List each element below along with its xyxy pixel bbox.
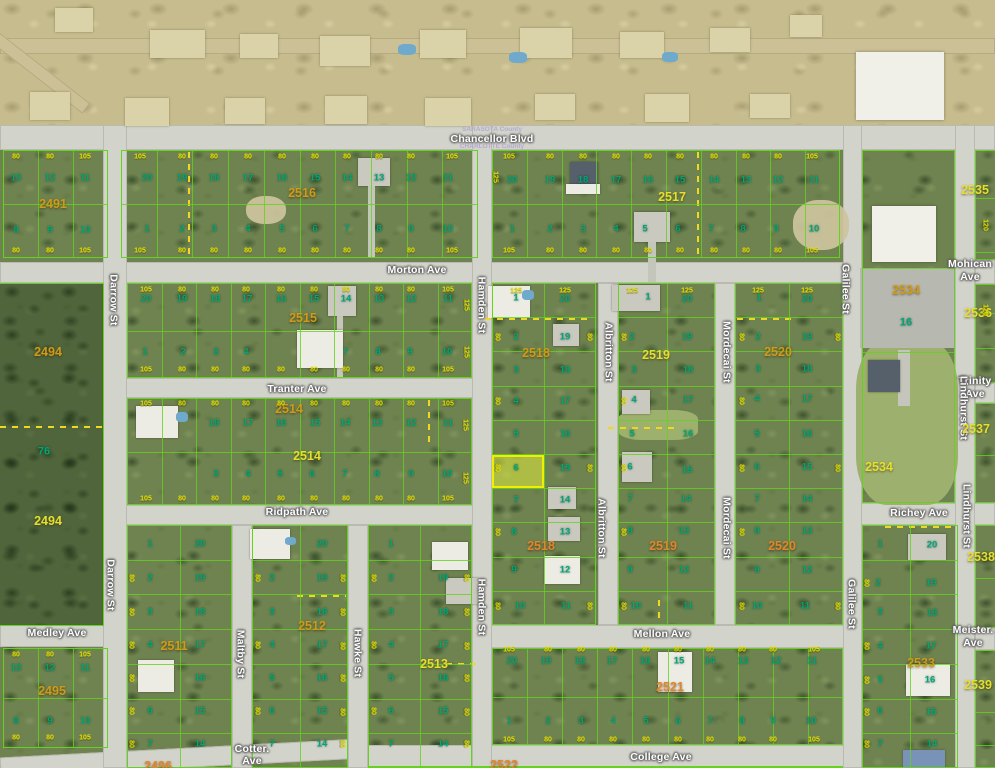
lot-number: 10 bbox=[752, 601, 763, 611]
lot-number: 16 bbox=[683, 429, 694, 439]
lot-dimension: 105 bbox=[79, 248, 91, 255]
street-label: Meister. bbox=[953, 625, 994, 636]
parcel-line bbox=[492, 204, 840, 205]
lot-number: 10 bbox=[631, 601, 642, 611]
block-number: 2515 bbox=[289, 312, 317, 325]
street-label: Ave bbox=[963, 638, 982, 649]
lot-number: 19 bbox=[560, 332, 571, 342]
lot-number: 20 bbox=[142, 173, 153, 183]
block-sliver-2538 bbox=[975, 525, 995, 628]
lot-number: 19 bbox=[541, 656, 552, 666]
lot-number: 18 bbox=[560, 365, 571, 375]
lot-number: 17 bbox=[802, 394, 813, 404]
lot-dimension: 105 bbox=[134, 154, 146, 161]
parcel-line bbox=[300, 525, 301, 768]
street-label: Ave bbox=[242, 756, 261, 767]
lot-number: 6 bbox=[312, 224, 317, 234]
lot-number: 2 bbox=[629, 332, 634, 342]
lot-number: 4 bbox=[877, 641, 882, 651]
lot-number: 16 bbox=[643, 175, 654, 185]
house bbox=[790, 15, 822, 37]
lot-dimension: 80 bbox=[407, 248, 415, 255]
lot-number: 12 bbox=[45, 173, 56, 183]
lot-number: 1 bbox=[509, 224, 514, 234]
lot-number: 17 bbox=[438, 640, 449, 650]
lot-number: 20 bbox=[802, 294, 813, 304]
parcel-line bbox=[975, 578, 995, 579]
lot-number: 9 bbox=[408, 469, 413, 479]
lot-dimension: 80 bbox=[211, 496, 219, 503]
house bbox=[750, 94, 790, 118]
large-building bbox=[856, 52, 944, 120]
lot-dimension: 80 bbox=[210, 248, 218, 255]
lot-number: 7 bbox=[707, 716, 712, 726]
lot-number: 6 bbox=[309, 469, 314, 479]
lot-dimension: 80 bbox=[546, 248, 554, 255]
block-sliver-2539 bbox=[975, 650, 995, 768]
parcel-line bbox=[3, 698, 108, 699]
lot-dimension: 125 bbox=[801, 288, 813, 295]
lot-number: 17 bbox=[683, 395, 694, 405]
lot-dimension: 105 bbox=[442, 496, 454, 503]
lot-dimension: 80 bbox=[609, 647, 617, 654]
street-label: Cotter. bbox=[235, 744, 270, 755]
lot-dimension: 80 bbox=[774, 154, 782, 161]
lot-dimension: 80 bbox=[863, 708, 870, 716]
parcel-line bbox=[862, 733, 958, 734]
lot-dimension: 80 bbox=[211, 287, 219, 294]
lot-number: 1 bbox=[147, 539, 152, 549]
lot-dimension: 80 bbox=[738, 737, 746, 744]
lot-dimension: 80 bbox=[463, 642, 470, 650]
lot-dimension: 105 bbox=[503, 737, 515, 744]
block-number: 2494 bbox=[34, 515, 62, 528]
block-number: 2520 bbox=[768, 540, 796, 553]
lot-number: 13 bbox=[738, 656, 749, 666]
lot-number: 15 bbox=[317, 706, 328, 716]
lot-dimension: 80 bbox=[342, 287, 350, 294]
parcel-line bbox=[618, 454, 715, 455]
lot-dimension: 80 bbox=[244, 248, 252, 255]
lot-number: 2 bbox=[547, 224, 552, 234]
lot-dimension: 80 bbox=[620, 602, 627, 610]
block-number: 2517 bbox=[658, 191, 686, 204]
lot-number: 12 bbox=[406, 418, 417, 428]
lot-number: 17 bbox=[243, 418, 254, 428]
lot-dimension: 80 bbox=[277, 367, 285, 374]
block-2494 bbox=[0, 283, 104, 626]
lot-dimension: 80 bbox=[579, 248, 587, 255]
lot-number: 18 bbox=[575, 656, 586, 666]
parcel-line bbox=[492, 488, 596, 489]
lot-number: 20 bbox=[507, 656, 518, 666]
street-label: Hamden St bbox=[476, 277, 487, 334]
lot-dimension: 105 bbox=[140, 287, 152, 294]
lot-dimension: 80 bbox=[12, 652, 20, 659]
house bbox=[420, 30, 466, 58]
lot-dimension: 80 bbox=[620, 528, 627, 536]
road-lindhurst-st bbox=[955, 125, 975, 768]
lot-number: 6 bbox=[675, 224, 680, 234]
block-number: 2513 bbox=[420, 658, 448, 671]
lot-number: 4 bbox=[513, 396, 518, 406]
lot-dimension: 80 bbox=[834, 602, 841, 610]
lot-number: 17 bbox=[560, 396, 571, 406]
lot-number: 4 bbox=[147, 640, 152, 650]
lot-number: 4 bbox=[388, 640, 393, 650]
lot-dimension: 80 bbox=[676, 154, 684, 161]
lot-dimension: 105 bbox=[442, 367, 454, 374]
county-label: SARASOTA County bbox=[462, 127, 522, 134]
lot-dimension: 80 bbox=[12, 735, 20, 742]
street-label: Darrow St bbox=[108, 274, 119, 325]
lot-number: 6 bbox=[877, 706, 882, 716]
lot-dimension: 80 bbox=[339, 642, 346, 650]
lot-dimension: 80 bbox=[674, 737, 682, 744]
street-label: Richey Ave bbox=[890, 508, 948, 519]
lot-dimension: 80 bbox=[577, 647, 585, 654]
lot-number: 2 bbox=[388, 573, 393, 583]
parcel-line bbox=[618, 386, 715, 387]
lot-dimension: 80 bbox=[277, 496, 285, 503]
lot-number: 15 bbox=[560, 463, 571, 473]
lot-number: 10 bbox=[806, 716, 817, 726]
house bbox=[320, 36, 370, 66]
parcel-line bbox=[252, 699, 348, 700]
lot-dimension: 80 bbox=[12, 154, 20, 161]
lot-number: 4 bbox=[245, 469, 250, 479]
parcel-line bbox=[368, 699, 472, 700]
lot-number: 13 bbox=[741, 175, 752, 185]
parcel-line bbox=[862, 699, 958, 700]
lot-number: 6 bbox=[388, 706, 393, 716]
block-number: 2495 bbox=[38, 685, 66, 698]
parcel-line bbox=[368, 560, 472, 561]
lot-dimension: 80 bbox=[343, 248, 351, 255]
house bbox=[240, 34, 278, 58]
house bbox=[645, 94, 689, 122]
lot-number: 13 bbox=[374, 173, 385, 183]
lot-dimension: 80 bbox=[242, 287, 250, 294]
block-number: 2539 bbox=[964, 679, 992, 692]
lot-dimension: 80 bbox=[738, 647, 746, 654]
lot-number: 1 bbox=[142, 347, 147, 357]
lot-dimension: 80 bbox=[343, 154, 351, 161]
block-number: 2512 bbox=[298, 620, 326, 633]
lot-dimension: 80 bbox=[46, 154, 54, 161]
lot-dimension: 80 bbox=[834, 464, 841, 472]
lot-number: 5 bbox=[277, 469, 282, 479]
lot-dimension: 125 bbox=[462, 472, 469, 484]
parcel-line bbox=[975, 455, 995, 456]
lot-number: 9 bbox=[407, 347, 412, 357]
lot-number: 17 bbox=[242, 294, 253, 304]
lot-dimension: 80 bbox=[311, 154, 319, 161]
parcel-line bbox=[735, 386, 843, 387]
lot-dimension: 125 bbox=[510, 288, 522, 295]
lot-number: 13 bbox=[679, 526, 690, 536]
lot-number: 5 bbox=[388, 673, 393, 683]
lot-number: 10 bbox=[443, 224, 454, 234]
lot-number: 14 bbox=[927, 739, 938, 749]
parcel-line bbox=[618, 488, 715, 489]
parcel-line bbox=[252, 560, 348, 561]
parcel-line bbox=[121, 204, 478, 205]
lot-dimension: 80 bbox=[178, 248, 186, 255]
lot-number: 7 bbox=[877, 739, 882, 749]
parcel-line bbox=[735, 522, 843, 523]
parcel-line bbox=[618, 317, 715, 318]
lot-number: 4 bbox=[610, 716, 615, 726]
lot-dimension: 105 bbox=[140, 401, 152, 408]
lot-number: 19 bbox=[545, 175, 556, 185]
house bbox=[150, 30, 205, 58]
street-label: Ridpath Ave bbox=[266, 507, 329, 518]
lot-number: 9 bbox=[770, 716, 775, 726]
parcel-line bbox=[735, 420, 843, 421]
street-label: Hamden St bbox=[476, 579, 487, 636]
lot-number: 5 bbox=[877, 675, 882, 685]
lot-dimension: 80 bbox=[706, 647, 714, 654]
parcel-line bbox=[862, 352, 955, 353]
lot-number: 10 bbox=[442, 347, 453, 357]
lot-number: 2 bbox=[545, 716, 550, 726]
lot-number: 14 bbox=[802, 494, 813, 504]
house bbox=[535, 94, 575, 120]
lot-dimension: 80 bbox=[742, 248, 750, 255]
lot-dimension: 80 bbox=[178, 496, 186, 503]
lot-dimension: 80 bbox=[834, 333, 841, 341]
parcel-line bbox=[368, 629, 472, 630]
parcel-line bbox=[492, 420, 596, 421]
house bbox=[425, 98, 471, 126]
parcel-line bbox=[492, 386, 596, 387]
block-number: 2521 bbox=[656, 681, 684, 694]
pool bbox=[509, 52, 527, 63]
lot-dimension: 80 bbox=[128, 707, 135, 715]
lot-number: 15 bbox=[438, 706, 449, 716]
house bbox=[30, 92, 70, 120]
lot-number: 5 bbox=[642, 224, 647, 234]
lot-number: 9 bbox=[47, 716, 52, 726]
lot-dimension: 105 bbox=[503, 248, 515, 255]
lot-number: 12 bbox=[406, 294, 417, 304]
lot-dimension: 80 bbox=[463, 708, 470, 716]
lot-number: 17 bbox=[317, 640, 328, 650]
lot-dimension: 105 bbox=[446, 248, 458, 255]
lot-number: 15 bbox=[802, 462, 813, 472]
lot-dimension: 105 bbox=[442, 401, 454, 408]
block-number: 2534 bbox=[892, 284, 920, 297]
lot-number: 2 bbox=[179, 224, 184, 234]
parcel-line bbox=[492, 522, 596, 523]
lot-dimension: 80 bbox=[46, 735, 54, 742]
lot-dimension: 80 bbox=[494, 333, 501, 341]
lot-dimension: 80 bbox=[586, 464, 593, 472]
lot-number: 15 bbox=[675, 175, 686, 185]
lot-number: 7 bbox=[344, 224, 349, 234]
lot-dimension: 80 bbox=[674, 647, 682, 654]
house bbox=[620, 32, 664, 58]
parcel-line bbox=[368, 594, 472, 595]
lot-number: 16 bbox=[277, 173, 288, 183]
lot-number: 13 bbox=[11, 663, 22, 673]
lot-number: 19 bbox=[177, 173, 188, 183]
lot-number: 17 bbox=[611, 175, 622, 185]
lot-dimension: 80 bbox=[244, 154, 252, 161]
lot-number: 18 bbox=[802, 364, 813, 374]
house bbox=[225, 98, 265, 124]
lot-number: 12 bbox=[802, 565, 813, 575]
lot-dimension: 80 bbox=[375, 401, 383, 408]
lot-number: 5 bbox=[629, 429, 634, 439]
parcel-line bbox=[127, 699, 232, 700]
lot-number: 6 bbox=[627, 462, 632, 472]
lot-number: 20 bbox=[560, 294, 571, 304]
aerial-plat-map[interactable]: SWFLAMLS Chancellor BlvdSARASOTA CountyC… bbox=[0, 0, 995, 768]
lot-dimension: 80 bbox=[463, 608, 470, 616]
block-sliver-2537 bbox=[975, 403, 995, 503]
lot-dimension: 80 bbox=[370, 707, 377, 715]
lot-number: 11 bbox=[443, 418, 453, 428]
lot-number: 8 bbox=[754, 526, 759, 536]
parcel-line bbox=[735, 488, 843, 489]
lot-dimension: 80 bbox=[211, 401, 219, 408]
lot-number: 1 bbox=[388, 539, 393, 549]
lot-dimension: 105 bbox=[446, 154, 458, 161]
house bbox=[55, 8, 93, 32]
lot-dimension: 80 bbox=[407, 401, 415, 408]
lot-dimension: 80 bbox=[254, 641, 261, 649]
lot-number: 18 bbox=[578, 175, 589, 185]
lot-number: 4 bbox=[243, 347, 248, 357]
lot-number: 13 bbox=[11, 173, 22, 183]
lot-dimension: 80 bbox=[310, 367, 318, 374]
lot-dimension: 80 bbox=[342, 367, 350, 374]
lot-number: 16 bbox=[438, 673, 449, 683]
lot-dimension: 120 bbox=[982, 219, 989, 231]
lot-number: 2 bbox=[875, 578, 880, 588]
parcel-line bbox=[910, 525, 911, 768]
lot-number: 19 bbox=[438, 573, 449, 583]
lot-dimension: 80 bbox=[242, 401, 250, 408]
lot-number: 11 bbox=[561, 601, 571, 611]
lot-dimension: 80 bbox=[642, 737, 650, 744]
lot-dimension: 80 bbox=[277, 287, 285, 294]
lot-dimension: 80 bbox=[339, 740, 346, 748]
lot-dimension: 80 bbox=[586, 333, 593, 341]
lot-dimension: 80 bbox=[742, 154, 750, 161]
lot-number: 7 bbox=[388, 739, 393, 749]
lot-dimension: 80 bbox=[128, 674, 135, 682]
lot-dimension: 80 bbox=[738, 464, 745, 472]
lot-number: 4 bbox=[631, 395, 636, 405]
lot-number: 16 bbox=[276, 418, 287, 428]
lot-dimension: 80 bbox=[12, 248, 20, 255]
lot-dimension: 80 bbox=[644, 248, 652, 255]
lot-dimension: 80 bbox=[128, 574, 135, 582]
lot-number: 14 bbox=[560, 495, 571, 505]
lot-dimension: 80 bbox=[370, 574, 377, 582]
parcel-line bbox=[735, 454, 843, 455]
street-label: Darrow St bbox=[105, 559, 116, 610]
lot-number: 1 bbox=[513, 293, 518, 303]
block-number: 2535 bbox=[961, 184, 989, 197]
lot-number: 11 bbox=[80, 173, 90, 183]
lot-number: 9 bbox=[511, 565, 516, 575]
lot-number: 11 bbox=[809, 175, 819, 185]
parcel-line bbox=[492, 697, 843, 698]
lot-number: 3 bbox=[631, 365, 636, 375]
lot-dimension: 80 bbox=[863, 579, 870, 587]
lot-dimension: 80 bbox=[254, 574, 261, 582]
lot-number: 1 bbox=[645, 292, 650, 302]
lot-number: 7 bbox=[342, 469, 347, 479]
lot-dimension: 80 bbox=[620, 464, 627, 472]
lot-dimension: 80 bbox=[620, 397, 627, 405]
lot-number: 3 bbox=[269, 607, 274, 617]
lot-number: 3 bbox=[147, 607, 152, 617]
lot-dimension: 80 bbox=[738, 528, 745, 536]
parcel-line bbox=[127, 560, 232, 561]
lot-dimension: 80 bbox=[46, 248, 54, 255]
street-label: Maltby St bbox=[235, 630, 246, 678]
lot-number: 11 bbox=[800, 601, 810, 611]
lot-number: 9 bbox=[773, 224, 778, 234]
lot-number: 16 bbox=[640, 656, 651, 666]
lot-number: 20 bbox=[507, 175, 518, 185]
lot-dimension: 125 bbox=[463, 299, 470, 311]
lot-number: 6 bbox=[675, 716, 680, 726]
lot-number: 1 bbox=[756, 293, 761, 303]
lot-number: 2 bbox=[180, 347, 185, 357]
lot-dimension: 80 bbox=[242, 367, 250, 374]
lot-number: 6 bbox=[269, 706, 274, 716]
lot-dimension: 80 bbox=[375, 287, 383, 294]
lot-dimension: 80 bbox=[738, 602, 745, 610]
lot-number: 3 bbox=[877, 607, 882, 617]
pool bbox=[662, 52, 678, 62]
lot-dimension: 80 bbox=[863, 676, 870, 684]
lot-dimension: 80 bbox=[579, 154, 587, 161]
lot-dimension: 80 bbox=[254, 707, 261, 715]
lot-number: 7 bbox=[147, 739, 152, 749]
street-label: Mordecai St bbox=[721, 497, 732, 559]
block-number: 2518 bbox=[527, 540, 555, 553]
lot-number: 7 bbox=[269, 739, 274, 749]
lot-number: 8 bbox=[375, 347, 380, 357]
lot-dimension: 125 bbox=[559, 288, 571, 295]
lot-dimension: 105 bbox=[503, 647, 515, 654]
street-label: Hawke St bbox=[352, 629, 363, 677]
lot-number: 17 bbox=[195, 640, 206, 650]
lot-number: 7 bbox=[343, 347, 348, 357]
lot-dimension: 105 bbox=[79, 652, 91, 659]
lot-number: 18 bbox=[209, 418, 220, 428]
lot-number: 16 bbox=[925, 675, 936, 685]
lot-number: 13 bbox=[374, 294, 385, 304]
block-number: 2496 bbox=[144, 760, 172, 768]
lot-dimension: 80 bbox=[407, 154, 415, 161]
lot-number: 15 bbox=[195, 706, 206, 716]
lot-number: 17 bbox=[243, 173, 254, 183]
lot-number: 14 bbox=[340, 418, 351, 428]
house bbox=[325, 96, 367, 124]
lot-number: 8 bbox=[376, 224, 381, 234]
lot-dimension: 80 bbox=[311, 248, 319, 255]
lot-dimension: 80 bbox=[342, 401, 350, 408]
lot-dimension: 125 bbox=[752, 288, 764, 295]
